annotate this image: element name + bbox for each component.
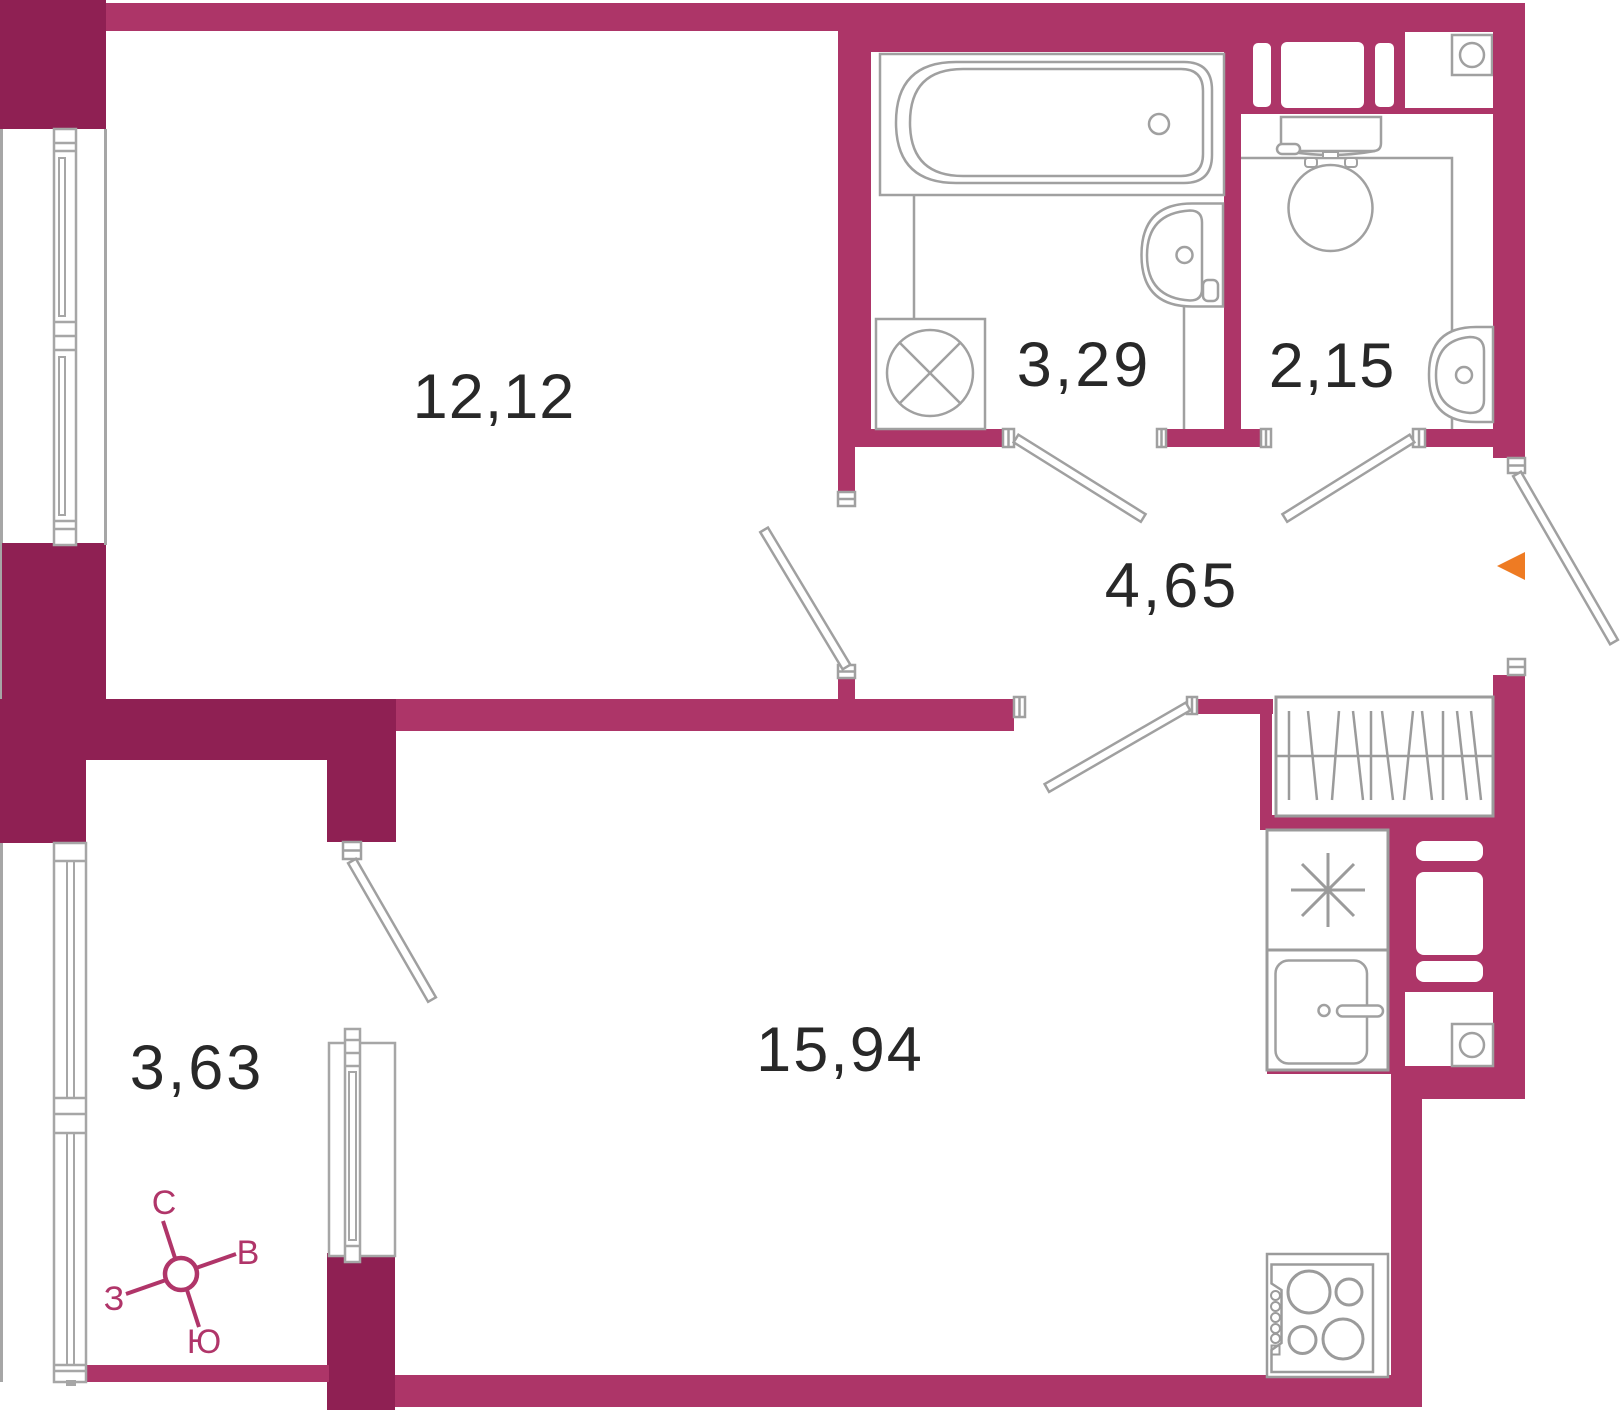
svg-text:С: С — [152, 1184, 177, 1222]
svg-text:В: В — [237, 1234, 260, 1272]
svg-text:Ю: Ю — [187, 1323, 221, 1361]
svg-text:З: З — [104, 1280, 125, 1318]
svg-text:3,63: 3,63 — [130, 1033, 265, 1103]
svg-text:15,94: 15,94 — [756, 1015, 924, 1085]
svg-text:2,15: 2,15 — [1269, 331, 1396, 401]
svg-text:4,65: 4,65 — [1105, 551, 1240, 621]
svg-text:12,12: 12,12 — [413, 362, 576, 432]
svg-text:3,29: 3,29 — [1017, 330, 1152, 400]
